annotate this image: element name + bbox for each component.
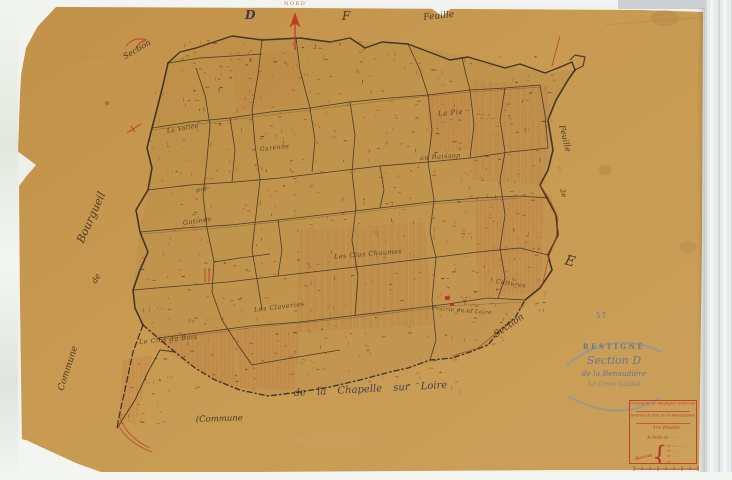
- renvois-line: N° ····· ··: [667, 461, 684, 463]
- scanned-cadastral-map: NORD D F Feuille Section Feuille 2e E Se…: [0, 0, 732, 480]
- stamp-number: 57: [596, 312, 607, 320]
- cartouche-rule: [636, 423, 690, 424]
- scan-margin-bottom: [0, 472, 732, 480]
- neighbor-letter-f: F: [342, 9, 350, 23]
- cartouche-commune-line: Commune de Restigné (Indre-et-Loire): [630, 401, 696, 406]
- scan-margin-left: [0, 0, 18, 480]
- renvois-bracket: {: [652, 443, 667, 464]
- cartouche-echelle: Échelle de · · · ·: [630, 435, 696, 440]
- renvois-line: N° ·· ····: [667, 456, 684, 458]
- cartouche-section-line: Section D dite de la Benaudière: [630, 413, 696, 418]
- renvois-label: Renvois: [635, 453, 648, 461]
- title-cartouche: Commune de Restigné (Indre-et-Loire) Sec…: [629, 400, 697, 464]
- north-label: NORD: [284, 1, 306, 7]
- cartouche-feuille: 1re Feuille: [630, 425, 697, 431]
- renvois-line: N° 1 ·········: [667, 445, 684, 447]
- map-drawing: [0, 0, 732, 480]
- bottom-margin-commune: (Commune: [196, 413, 243, 425]
- cartouche-rule: [636, 411, 690, 412]
- cartouche-renvois: Renvois { N° 1 ·········N° ··· ·····N° ·…: [630, 444, 696, 464]
- neighbor-letter-d: D: [245, 8, 255, 22]
- feuille-right-number: 2e: [558, 188, 568, 198]
- renvois-lines: N° 1 ·········N° ··· ·····N° ·· ····N° ·…: [667, 444, 697, 464]
- scan-margin-right: [705, 0, 732, 480]
- renvois-line: N° ··· ·····: [667, 451, 684, 453]
